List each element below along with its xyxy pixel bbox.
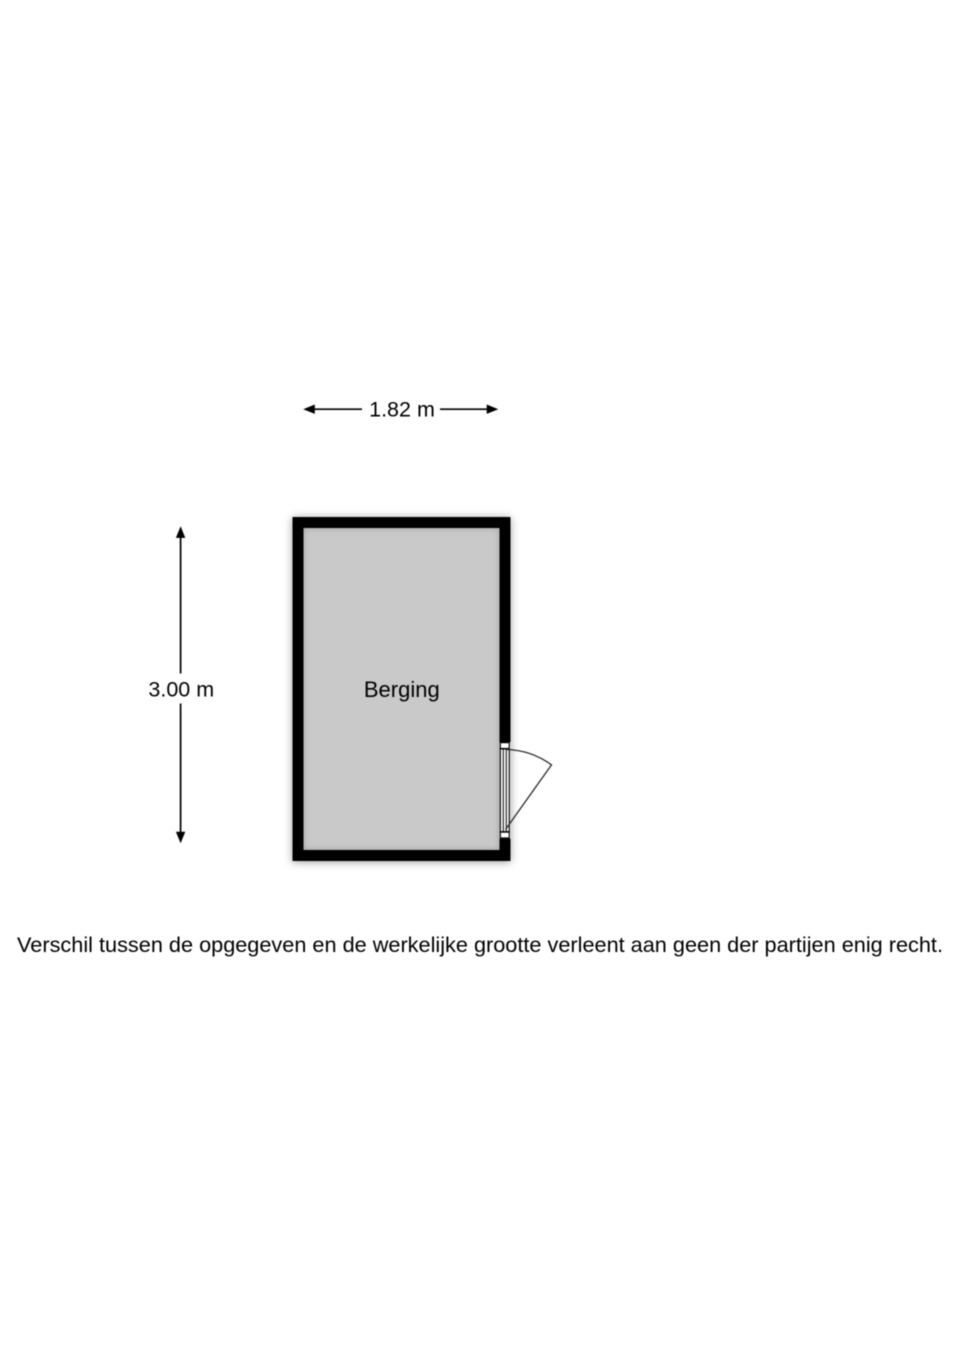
svg-text:Verschil tussen de opgegeven e: Verschil tussen de opgegeven en de werke… (17, 932, 943, 957)
svg-text:3.00 m: 3.00 m (148, 678, 214, 702)
svg-text:1.82 m: 1.82 m (369, 398, 435, 422)
svg-text:Berging: Berging (364, 677, 440, 702)
